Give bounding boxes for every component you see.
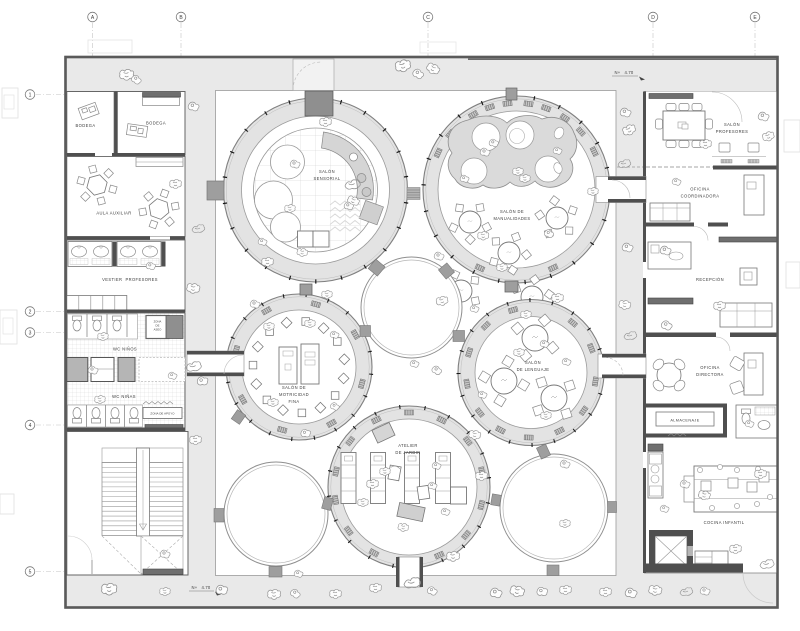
svg-text:OFICINA: OFICINA — [700, 365, 719, 370]
svg-text:1: 1 — [29, 92, 32, 98]
svg-text:4: 4 — [29, 423, 32, 429]
svg-text:OFICINA: OFICINA — [690, 187, 709, 192]
svg-text:WC NIÑAS: WC NIÑAS — [112, 394, 136, 399]
svg-text:SALÓN: SALÓN — [724, 122, 740, 127]
svg-text:DE JARDIN: DE JARDIN — [395, 450, 420, 455]
svg-text:C: C — [426, 15, 430, 21]
svg-text:SALÓN: SALÓN — [319, 169, 335, 174]
svg-text:N+ 4.70: N+ 4.70 — [615, 70, 634, 75]
svg-text:PROFESORES: PROFESORES — [716, 129, 748, 134]
svg-text:SALÓN DE: SALÓN DE — [282, 385, 306, 390]
svg-text:3: 3 — [29, 330, 32, 336]
svg-text:VESTIER PROFESORES: VESTIER PROFESORES — [102, 277, 158, 282]
svg-text:SENSORIAL: SENSORIAL — [313, 176, 340, 181]
svg-text:BODEGA: BODEGA — [146, 121, 166, 126]
svg-text:SALÓN DE: SALÓN DE — [500, 209, 524, 214]
svg-text:ATELIER: ATELIER — [398, 443, 418, 448]
svg-text:COORDINADORA: COORDINADORA — [681, 194, 720, 199]
svg-text:COCINA INFANTIL: COCINA INFANTIL — [704, 520, 745, 525]
svg-text:DE LENGUAJE: DE LENGUAJE — [517, 367, 550, 372]
svg-text:ASEO: ASEO — [154, 328, 162, 332]
svg-text:FINA: FINA — [289, 399, 300, 404]
svg-text:DE: DE — [156, 324, 160, 328]
svg-text:WC NIÑOS: WC NIÑOS — [113, 347, 137, 352]
svg-text:MOTRICIDAD: MOTRICIDAD — [279, 392, 309, 397]
svg-text:2: 2 — [29, 309, 32, 315]
svg-text:N+ 4.70: N+ 4.70 — [192, 585, 211, 590]
svg-text:DIRECTORA: DIRECTORA — [696, 372, 724, 377]
svg-text:MANUALIDADES: MANUALIDADES — [493, 216, 530, 221]
svg-text:AULA AUXILIAR: AULA AUXILIAR — [96, 211, 131, 216]
svg-text:ZONA DE APOYO: ZONA DE APOYO — [150, 412, 175, 416]
svg-text:5: 5 — [29, 569, 32, 575]
svg-text:ALMACENAJE: ALMACENAJE — [670, 419, 699, 423]
svg-text:BODEGA: BODEGA — [76, 123, 96, 128]
svg-text:D: D — [651, 15, 655, 21]
svg-text:SALÓN: SALÓN — [525, 360, 541, 365]
svg-text:ZONA: ZONA — [154, 320, 162, 324]
svg-text:RECEPCIÓN: RECEPCIÓN — [696, 277, 724, 282]
